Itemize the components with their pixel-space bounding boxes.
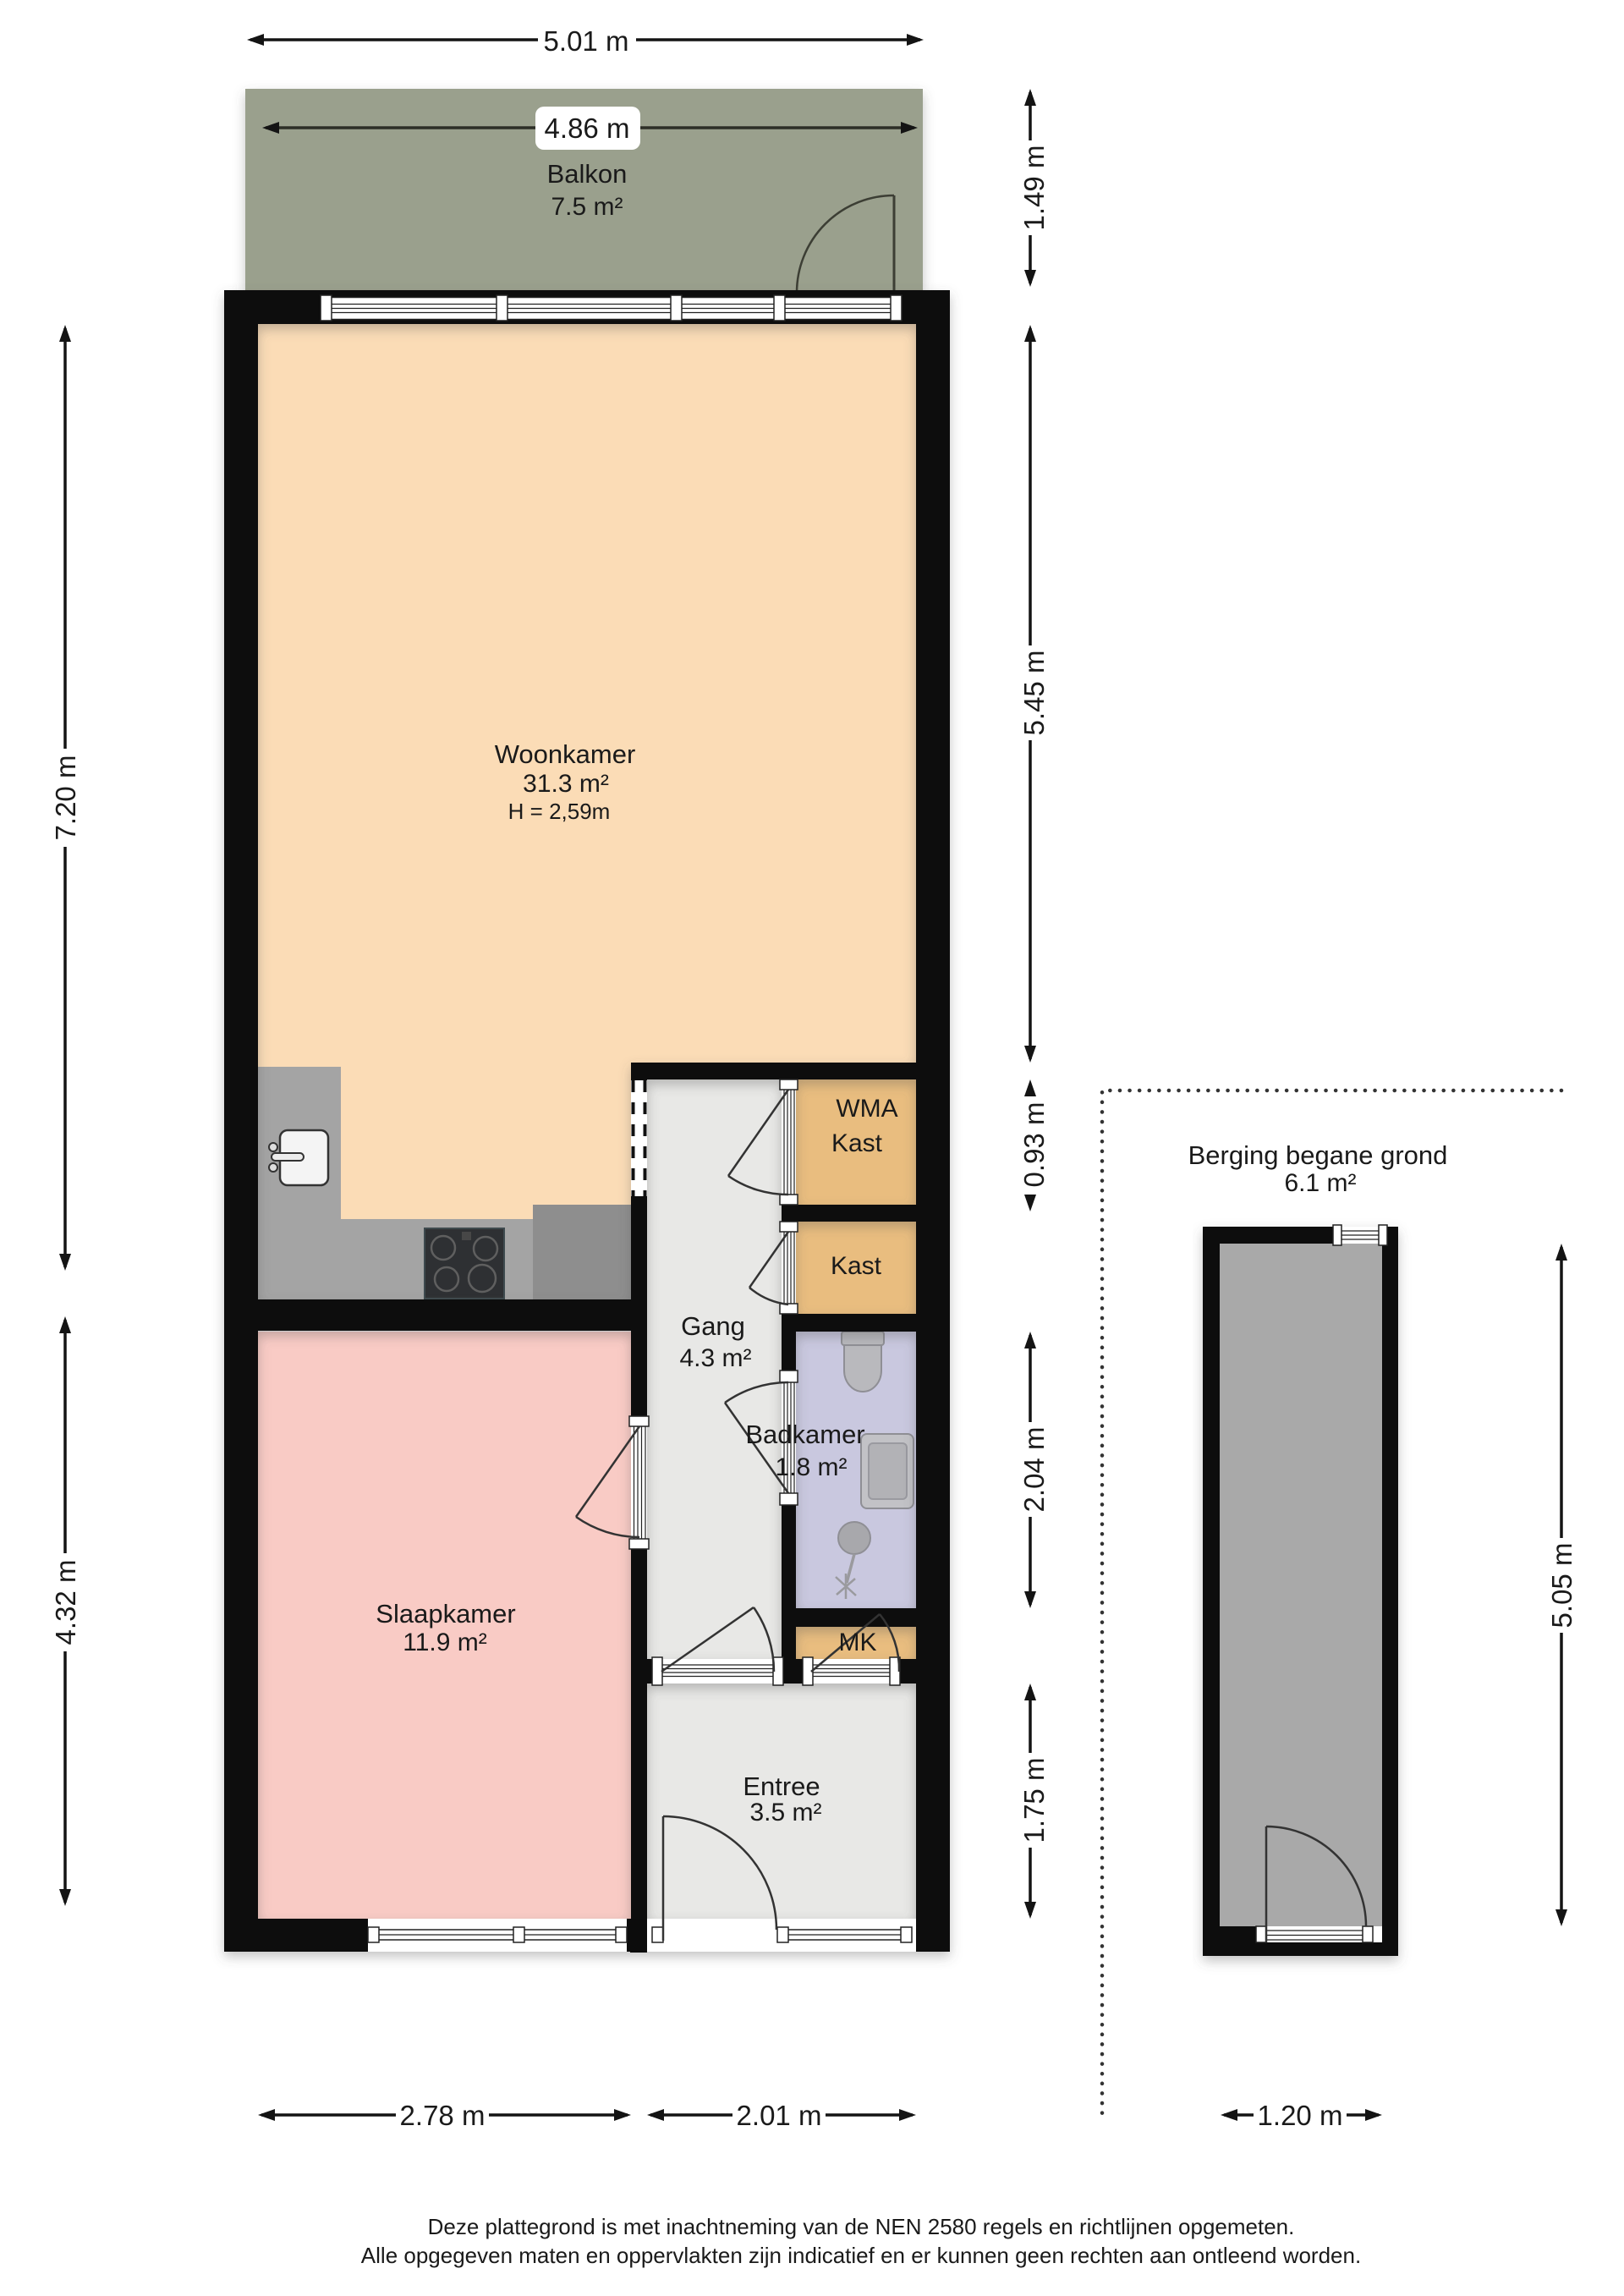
svg-text:WMA: WMA (836, 1095, 897, 1123)
svg-text:Deze plattegrond is met inacht: Deze plattegrond is met inachtneming van… (428, 2214, 1295, 2239)
svg-text:Berging begane grond: Berging begane grond (1188, 1140, 1448, 1170)
svg-text:Badkamer: Badkamer (745, 1420, 864, 1449)
svg-text:7.5 m²: 7.5 m² (551, 193, 623, 221)
svg-text:4.32 m: 4.32 m (50, 1560, 81, 1645)
svg-text:Woonkamer: Woonkamer (495, 739, 636, 769)
svg-text:H = 2,59m: H = 2,59m (508, 799, 611, 824)
svg-text:7.20 m: 7.20 m (50, 755, 81, 841)
svg-text:6.1 m²: 6.1 m² (1284, 1169, 1356, 1197)
svg-text:1.8 m²: 1.8 m² (775, 1453, 847, 1481)
svg-text:2.01 m: 2.01 m (737, 2100, 822, 2131)
svg-text:Entree: Entree (743, 1771, 820, 1801)
svg-text:4.86 m: 4.86 m (545, 113, 630, 144)
svg-text:5.01 m: 5.01 m (544, 25, 629, 57)
svg-text:2.78 m: 2.78 m (400, 2100, 486, 2131)
svg-text:5.45 m: 5.45 m (1018, 651, 1050, 736)
svg-text:1.49 m: 1.49 m (1018, 146, 1050, 231)
svg-text:3.5 m²: 3.5 m² (749, 1799, 821, 1826)
svg-text:1.20 m: 1.20 m (1258, 2100, 1343, 2131)
svg-text:11.9 m²: 11.9 m² (403, 1629, 486, 1656)
svg-text:Alle opgegeven maten en opperv: Alle opgegeven maten en oppervlakten zij… (361, 2243, 1361, 2268)
svg-text:Kast: Kast (831, 1129, 883, 1157)
svg-text:2.04 m: 2.04 m (1018, 1427, 1050, 1513)
svg-text:4.3 m²: 4.3 m² (679, 1344, 751, 1372)
svg-text:31.3 m²: 31.3 m² (523, 770, 609, 798)
svg-text:Gang: Gang (681, 1311, 745, 1341)
svg-text:Slaapkamer: Slaapkamer (376, 1599, 515, 1629)
svg-text:5.05 m: 5.05 m (1546, 1543, 1577, 1629)
svg-text:Kast: Kast (831, 1252, 882, 1280)
svg-text:0.93 m: 0.93 m (1018, 1102, 1050, 1188)
svg-text:MK: MK (839, 1629, 877, 1656)
svg-text:1.75 m: 1.75 m (1018, 1758, 1050, 1843)
svg-text:Balkon: Balkon (547, 159, 628, 189)
